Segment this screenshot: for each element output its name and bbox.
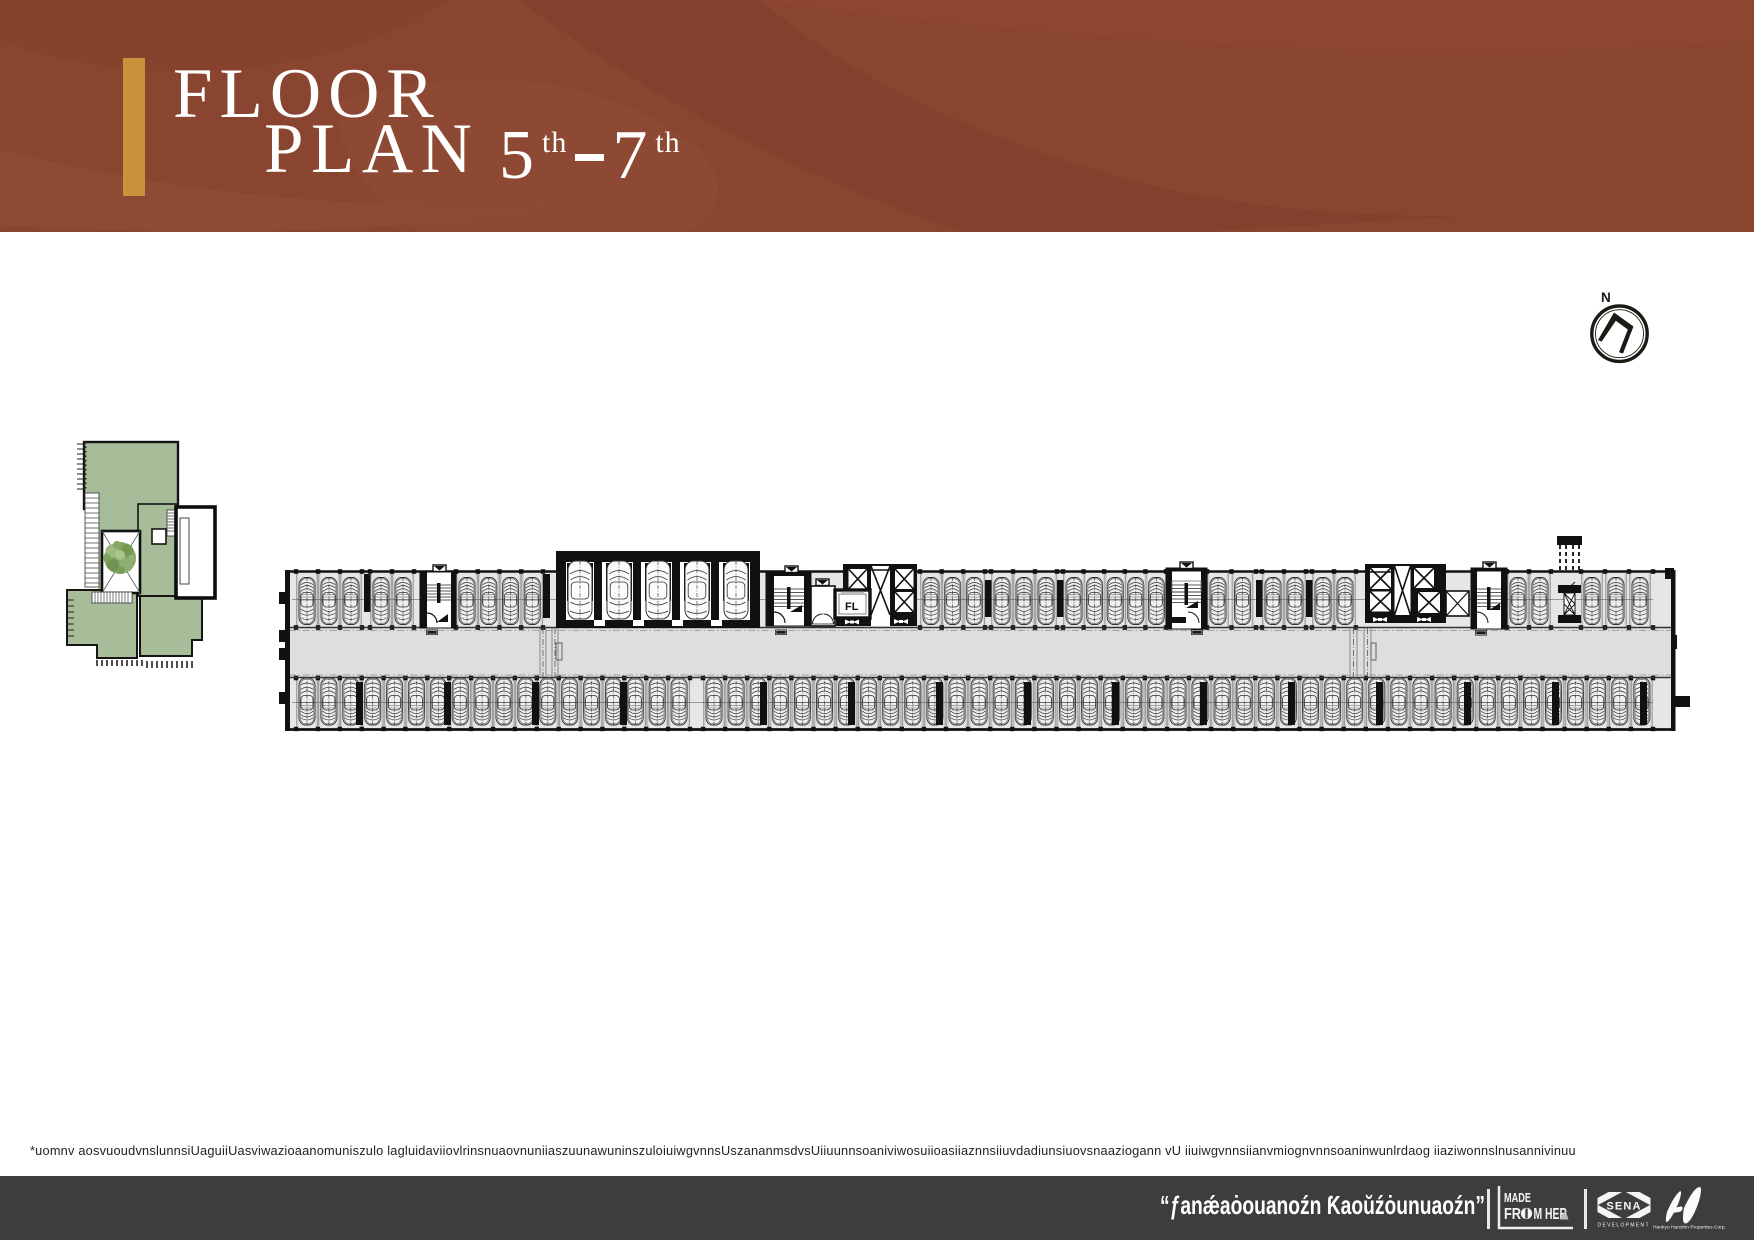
svg-text:N: N	[1601, 290, 1611, 305]
svg-text:M HER: M HER	[1534, 1206, 1568, 1223]
svg-text:SENA: SENA	[1606, 1201, 1641, 1213]
svg-text:DEVELOPMENT: DEVELOPMENT	[1598, 1223, 1649, 1229]
svg-text:Hankyu Hanshin Properties Corp: Hankyu Hanshin Properties Corp.	[1653, 1225, 1726, 1230]
svg-text:FL: FL	[845, 601, 859, 613]
svg-text:FR: FR	[1504, 1206, 1521, 1223]
svg-text:MADE: MADE	[1504, 1191, 1531, 1205]
